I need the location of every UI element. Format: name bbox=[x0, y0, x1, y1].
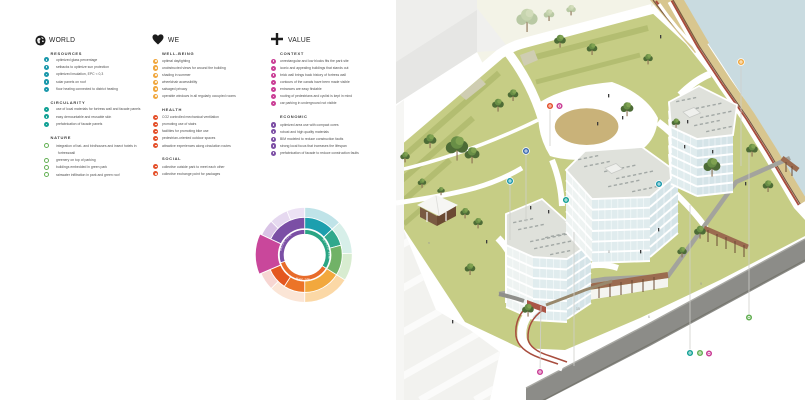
svg-text:15: 15 bbox=[576, 307, 580, 311]
svg-text:8: 8 bbox=[608, 250, 610, 254]
svg-text:n: n bbox=[428, 241, 430, 245]
svg-text:6: 6 bbox=[648, 315, 650, 319]
svg-text:9: 9 bbox=[700, 282, 702, 286]
